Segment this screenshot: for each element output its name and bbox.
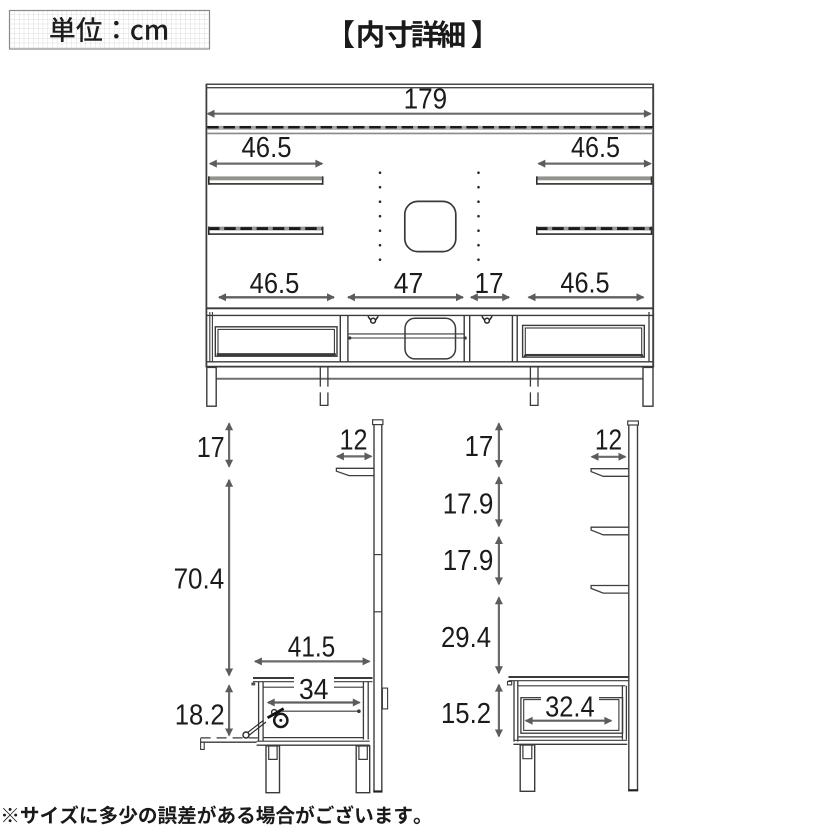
- svg-text:17.9: 17.9: [443, 545, 494, 577]
- svg-text:47: 47: [394, 268, 424, 300]
- svg-text:17: 17: [475, 268, 504, 300]
- svg-text:179: 179: [404, 84, 448, 116]
- svg-text:46.5: 46.5: [250, 268, 300, 300]
- svg-text:15.2: 15.2: [441, 698, 491, 730]
- svg-text:12: 12: [595, 425, 622, 457]
- svg-text:46.5: 46.5: [571, 132, 620, 164]
- svg-text:18.2: 18.2: [175, 700, 225, 732]
- svg-text:12: 12: [340, 424, 368, 456]
- svg-text:46.5: 46.5: [560, 268, 609, 300]
- svg-text:17: 17: [197, 432, 225, 464]
- svg-text:17: 17: [465, 431, 494, 463]
- svg-text:34: 34: [299, 674, 328, 706]
- svg-text:41.5: 41.5: [288, 631, 336, 663]
- svg-text:29.4: 29.4: [441, 622, 491, 654]
- svg-text:46.5: 46.5: [242, 132, 292, 164]
- svg-text:17.9: 17.9: [443, 489, 494, 521]
- svg-text:32.4: 32.4: [545, 691, 595, 723]
- svg-text:70.4: 70.4: [174, 564, 225, 596]
